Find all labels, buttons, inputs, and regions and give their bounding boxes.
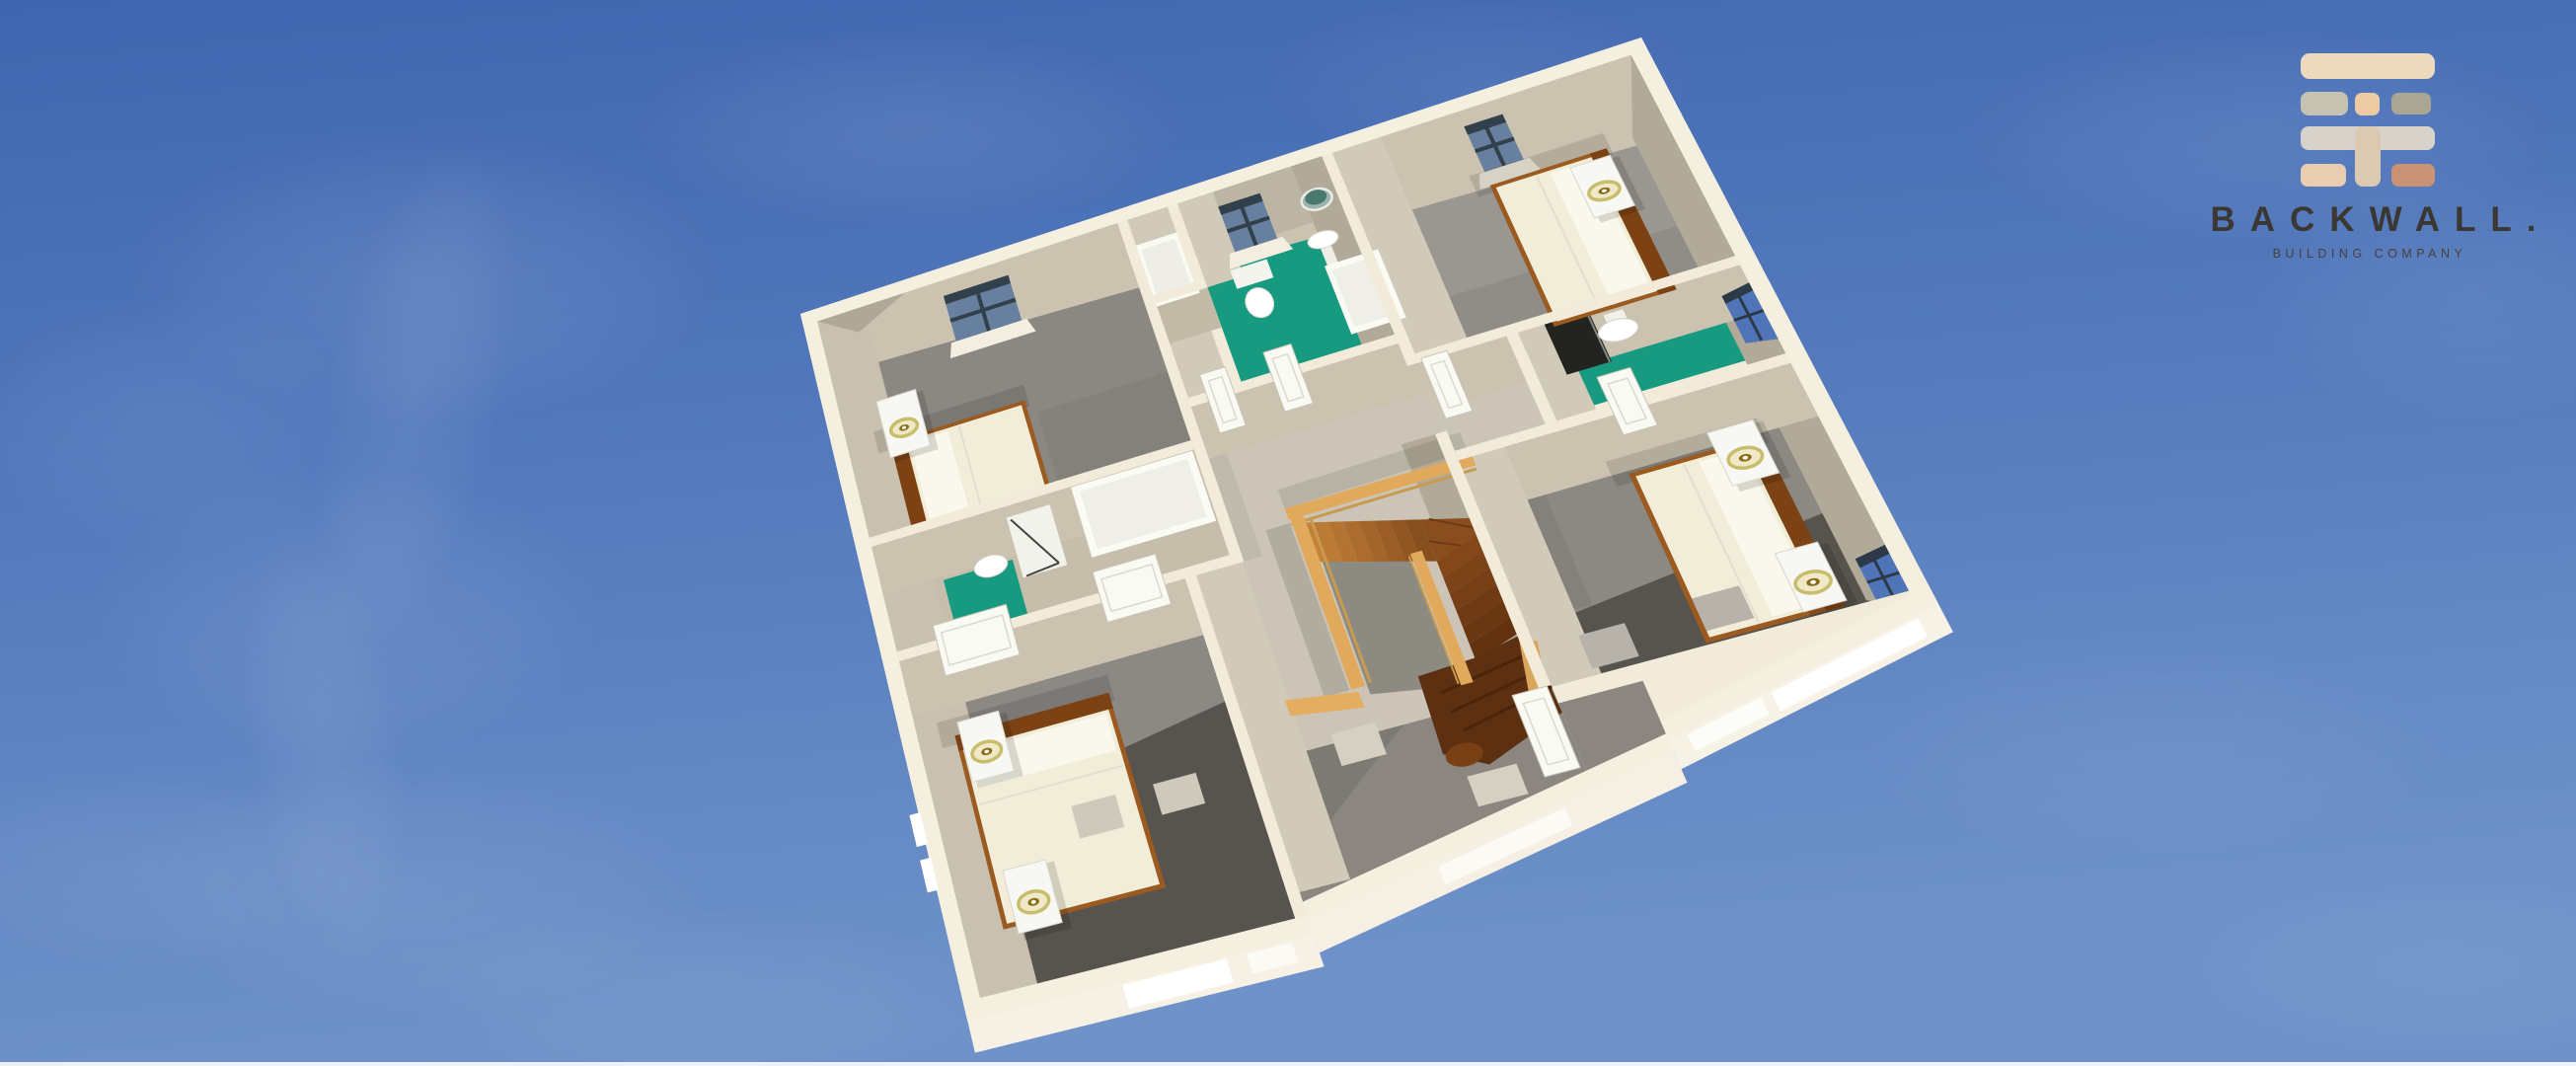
svg-text:BUILDING COMPANY: BUILDING COMPANY bbox=[2273, 247, 2467, 261]
svg-text:BACKWALL.: BACKWALL. bbox=[2211, 200, 2551, 239]
